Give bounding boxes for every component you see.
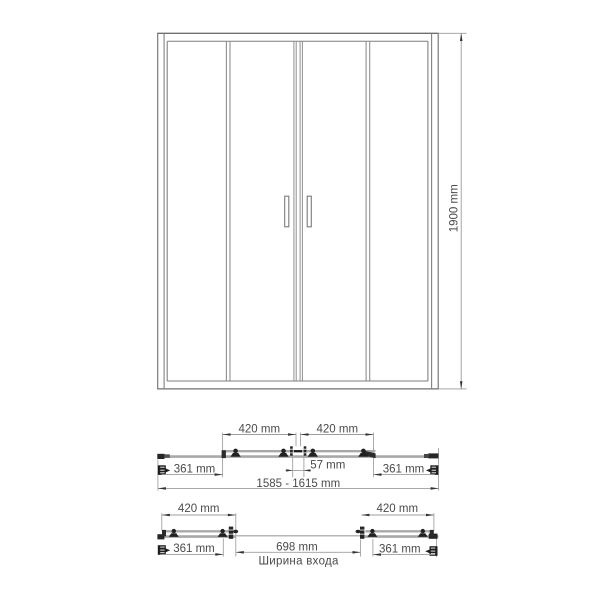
svg-text:1900 mm: 1900 mm [449,184,461,232]
svg-text:361 mm: 361 mm [383,463,425,475]
svg-text:420 mm: 420 mm [178,503,220,515]
svg-text:361 mm: 361 mm [173,543,215,555]
svg-text:57 mm: 57 mm [310,460,345,472]
svg-text:Ширина входа: Ширина входа [258,556,339,568]
svg-text:361 mm: 361 mm [379,543,421,555]
svg-text:420 mm: 420 mm [239,423,281,435]
svg-text:420 mm: 420 mm [317,423,359,435]
svg-text:361 mm: 361 mm [174,463,216,475]
svg-text:420 mm: 420 mm [377,503,419,515]
svg-text:698 mm: 698 mm [276,542,318,554]
svg-text:1585 - 1615 mm: 1585 - 1615 mm [256,478,340,490]
